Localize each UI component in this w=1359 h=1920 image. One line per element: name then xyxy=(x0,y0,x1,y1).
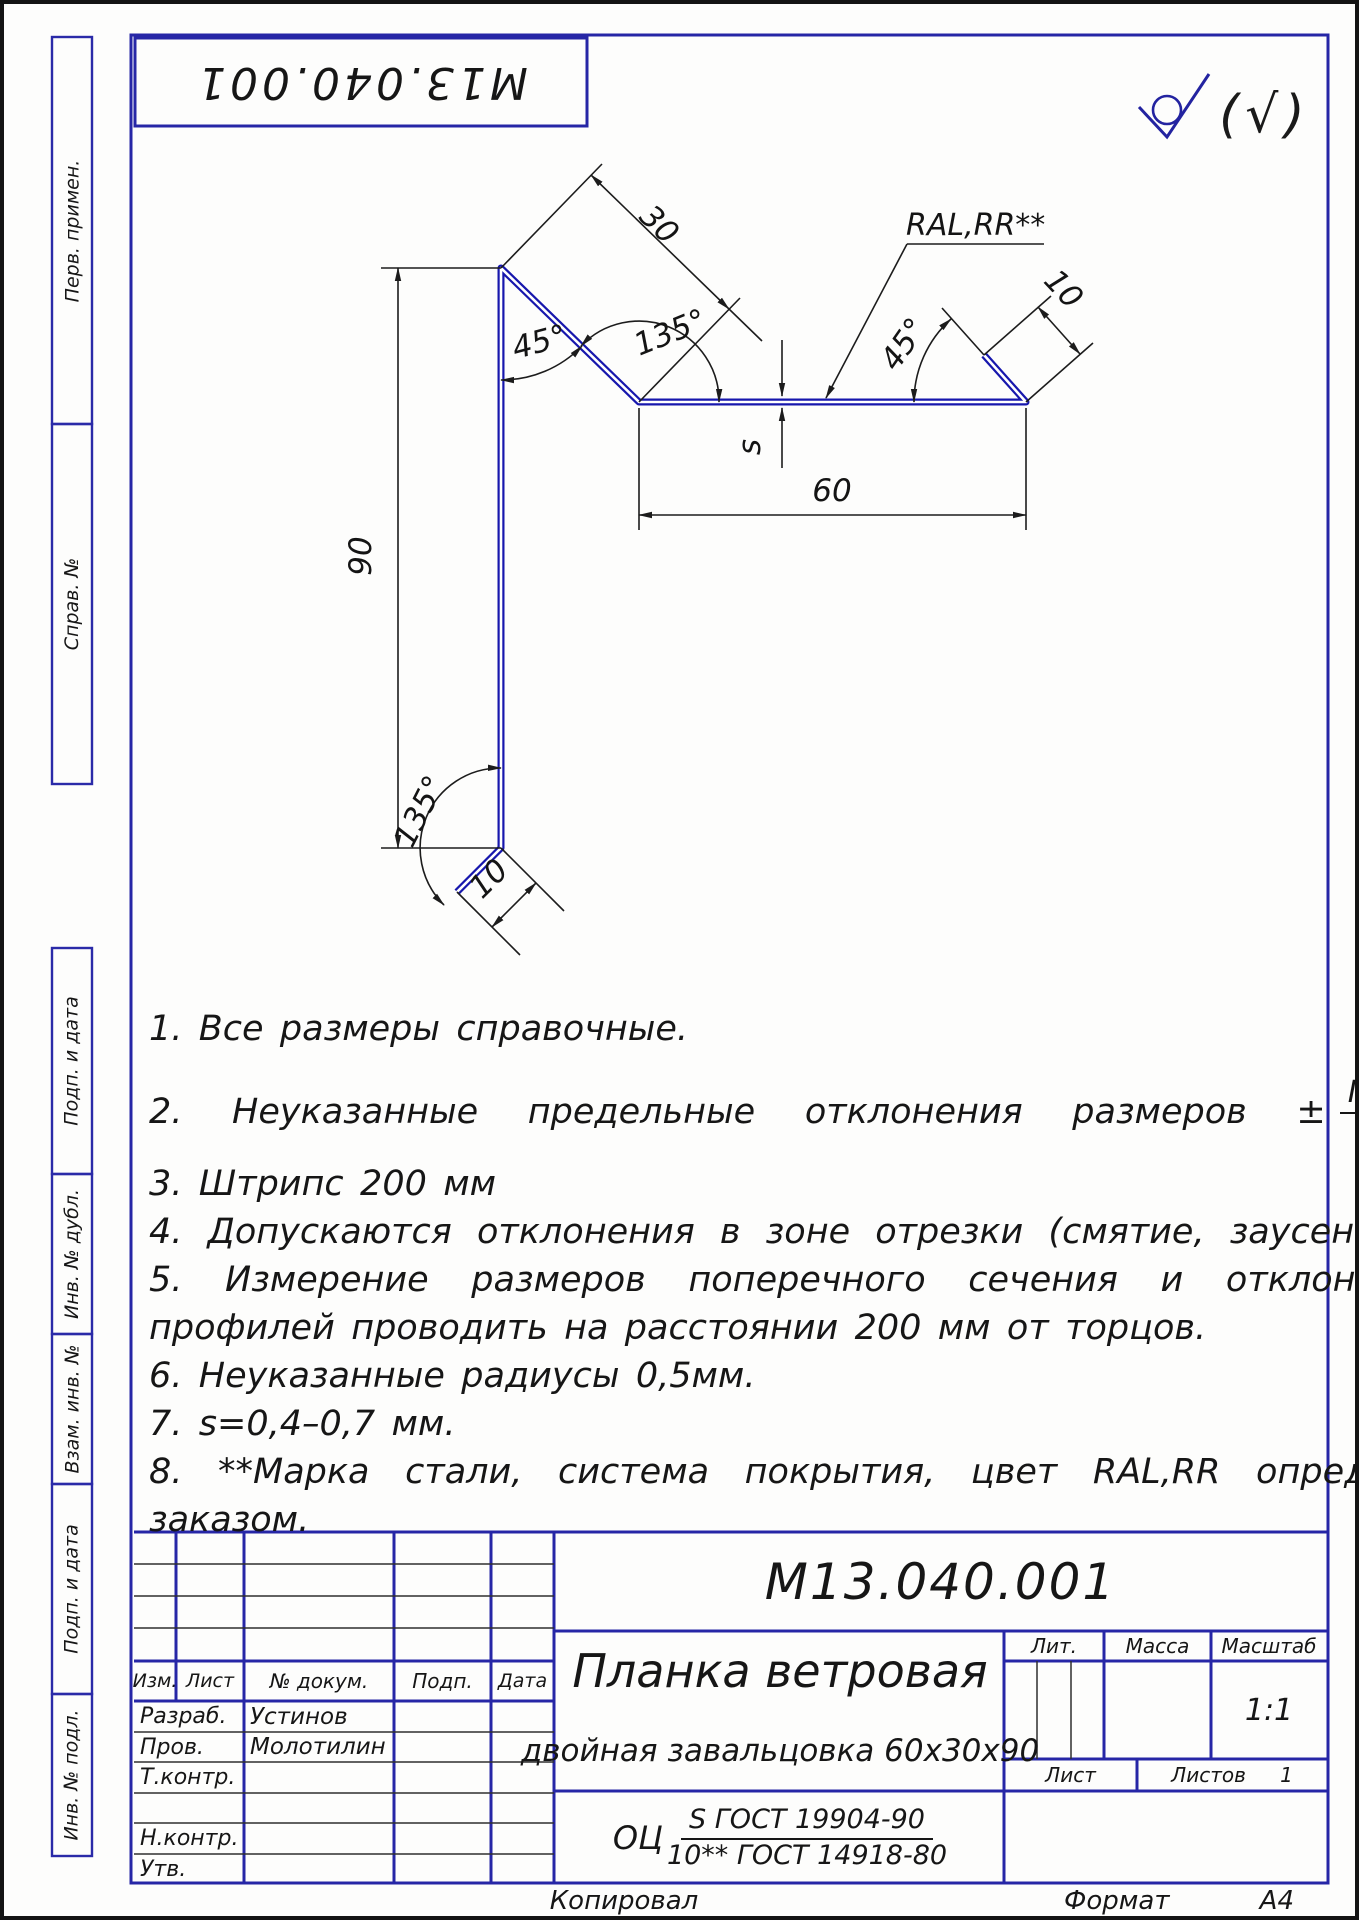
margin-strip-label: Подп. и дата xyxy=(61,996,83,1125)
material-numerator: S ГОСТ 19904-90 xyxy=(681,1804,933,1839)
stamp-sheets-value: 1 xyxy=(1280,1763,1293,1787)
note-line-7: 7. s=0,4–0,7 мм. xyxy=(149,1404,455,1444)
note-line-2-prefix: 2. Неуказанные предельные отклонения раз… xyxy=(149,1092,1326,1132)
profile-outline xyxy=(457,268,1026,892)
drawing-sheet: 90 30 135° 45° s RAL,RR** xyxy=(0,0,1359,1920)
material-denominator: 10** ГОСТ 14918-80 xyxy=(667,1840,947,1871)
note-line-2: 2. Неуказанные предельные отклонения раз… xyxy=(149,1062,1359,1162)
stamp-scale-value: 1:1 xyxy=(1211,1661,1327,1759)
stamp-header-list: Лист xyxy=(176,1661,244,1701)
note-line-1: 1. Все размеры справочные. xyxy=(149,1009,688,1049)
footer-copied-by: Копировал xyxy=(484,1886,764,1916)
stamp-title-line2: двойная завальцовка 60х30х90 xyxy=(556,1711,1004,1791)
note-line-8b: заказом. xyxy=(149,1500,309,1540)
dim-label-s: s xyxy=(732,439,768,455)
margin-strip-label: Взам. инв. № xyxy=(61,1344,83,1473)
fraction-numerator: IT14 xyxy=(1340,1076,1359,1115)
note-line-5a: 5. Измерение размеров поперечного сечени… xyxy=(149,1260,1359,1300)
stamp-role-name xyxy=(250,1854,392,1884)
material-fraction: S ГОСТ 19904-90 10** ГОСТ 14918-80 xyxy=(667,1804,947,1870)
stamp-header-podp: Подп. xyxy=(394,1661,491,1701)
stamp-sheet-label: Лист xyxy=(1004,1759,1137,1791)
angle-label-135-top: 135° xyxy=(629,302,712,363)
stamp-header-data: Дата xyxy=(491,1661,554,1701)
stamp-lit-label: Лит. xyxy=(1004,1631,1104,1661)
dim-label-10-bottom: 10 xyxy=(462,852,515,905)
roughness-note: (√) xyxy=(1219,85,1311,145)
margin-strip-label: Перв. примен. xyxy=(61,159,83,302)
margin-strip-vzam-inv: Взам. инв. № xyxy=(52,1334,92,1484)
stamp-role-name: Молотилин xyxy=(250,1732,392,1762)
stamp-role-label: Утв. xyxy=(140,1854,240,1884)
surface-roughness-icon xyxy=(1139,74,1209,137)
angle-label-135-bottom: 135° xyxy=(387,770,453,853)
stamp-material: ОЦ S ГОСТ 19904-90 10** ГОСТ 14918-80 xyxy=(556,1791,1004,1884)
dim-label-90: 90 xyxy=(343,536,379,575)
material-prefix: ОЦ xyxy=(613,1819,663,1857)
dim-label-30: 30 xyxy=(632,198,685,251)
footer-format-value: А4 xyxy=(1260,1886,1294,1916)
note-line-2-fraction: IT14 2 xyxy=(1340,1076,1359,1149)
stamp-mass-label: Масса xyxy=(1104,1631,1211,1661)
stamp-role-name xyxy=(250,1762,392,1793)
angle-label-45-top: 45° xyxy=(508,318,570,367)
stamp-role-label: Н.контр. xyxy=(140,1823,240,1854)
stamp-title-line1: Планка ветровая xyxy=(556,1631,1004,1711)
dim-label-60: 60 xyxy=(812,473,851,509)
footer-format-label: Формат xyxy=(1064,1886,1170,1916)
margin-strip-sprav-no: Справ. № xyxy=(52,424,92,784)
stamp-header-izm: Изм. xyxy=(134,1661,176,1701)
note-line-4: 4. Допускаются отклонения в зоне отрезки… xyxy=(149,1212,1359,1252)
dim-label-10-right: 10 xyxy=(1037,262,1090,315)
note-line-8a: 8. **Марка стали, система покрытия, цвет… xyxy=(149,1452,1359,1492)
margin-strip-perv-primen: Перв. примен. xyxy=(52,37,92,424)
stamp-role-name xyxy=(250,1793,392,1823)
margin-strip-podp-data-1: Подп. и дата xyxy=(52,948,92,1174)
stamp-scale-label: Масштаб xyxy=(1211,1631,1327,1661)
note-line-3: 3. Штрипс 200 мм xyxy=(149,1164,496,1204)
top-designation: М13.040.001 xyxy=(135,38,587,126)
dimensions: 90 30 135° 45° s RAL,RR** xyxy=(343,164,1093,955)
stamp-role-label xyxy=(140,1793,240,1823)
margin-strip-label: Инв. № подл. xyxy=(61,1709,83,1840)
margin-strip-label: Справ. № xyxy=(61,558,83,650)
stamp-header-doc: № докум. xyxy=(244,1661,394,1701)
stamp-role-label: Пров. xyxy=(140,1732,240,1762)
margin-strip-podp-data-2: Подп. и дата xyxy=(52,1484,92,1694)
note-line-5b: профилей проводить на расстоянии 200 мм … xyxy=(149,1308,1206,1348)
margin-strip-label: Подп. и дата xyxy=(61,1524,83,1653)
stamp-sheets-cell: Листов 1 xyxy=(1137,1759,1327,1791)
coating-callout: RAL,RR** xyxy=(906,208,1045,243)
stamp-role-label: Т.контр. xyxy=(140,1762,240,1793)
angle-label-45-right: 45° xyxy=(873,311,934,377)
margin-strip-inv-podl: Инв. № подл. xyxy=(52,1694,92,1856)
stamp-sheets-label: Листов xyxy=(1171,1763,1246,1787)
margin-strip-label: Инв. № дубл. xyxy=(61,1189,83,1319)
footer-format: Формат А4 xyxy=(1064,1886,1294,1916)
margin-strip-inv-dubl: Инв. № дубл. xyxy=(52,1174,92,1334)
top-designation-text: М13.040.001 xyxy=(194,57,528,108)
stamp-designation: М13.040.001 xyxy=(554,1532,1327,1631)
stamp-role-label: Разраб. xyxy=(140,1701,240,1732)
stamp-role-name xyxy=(250,1823,392,1854)
stamp-role-name: Устинов xyxy=(250,1701,392,1732)
note-line-6: 6. Неуказанные радиусы 0,5мм. xyxy=(149,1356,755,1396)
